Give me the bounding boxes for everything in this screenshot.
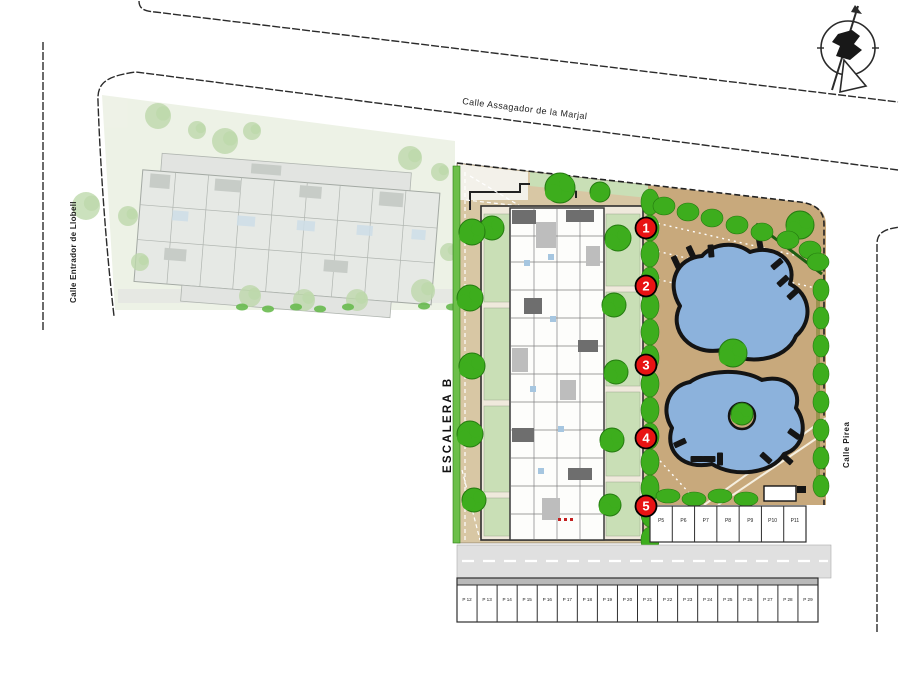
tree xyxy=(731,411,743,423)
parking-row-upper: P5P6P7P8P9P10P11 xyxy=(650,506,806,542)
parking-stall-label: P 16 xyxy=(543,597,553,602)
unit-badge-3-number: 3 xyxy=(642,358,649,373)
unit-badge-1-number: 1 xyxy=(642,221,649,236)
tree xyxy=(491,219,503,231)
tree xyxy=(599,502,611,514)
unit-badge-4-number: 4 xyxy=(642,431,650,446)
parking-stall-label: P 15 xyxy=(523,597,533,602)
parking-stall-label: P 22 xyxy=(663,597,673,602)
terrace-structure-dark xyxy=(797,486,806,493)
hedge-clump xyxy=(813,419,829,441)
hedge-clump xyxy=(751,223,773,241)
parking-stall-label: P9 xyxy=(747,518,753,524)
parking-stall-label: P 28 xyxy=(783,597,793,602)
tree xyxy=(600,437,613,450)
tree xyxy=(459,363,473,377)
faded-tree xyxy=(408,149,421,162)
site-plan-drawing: P5P6P7P8P9P10P11 P 12P 13P 14P 15P 16P 1… xyxy=(0,0,900,675)
hedge-clump xyxy=(677,203,699,221)
faded-tree xyxy=(156,106,170,120)
parking-stall-label: P 20 xyxy=(623,597,633,602)
tree xyxy=(799,215,813,229)
tree xyxy=(611,431,623,443)
street-label-right: Calle Pirea xyxy=(842,422,851,468)
tree xyxy=(613,296,625,308)
tree xyxy=(732,343,746,357)
parking-stall-label: P7 xyxy=(703,518,709,524)
tree xyxy=(545,184,562,201)
tree xyxy=(600,185,610,195)
tree xyxy=(590,190,601,201)
hedge-clump xyxy=(777,231,799,249)
site-escalera-b: P5P6P7P8P9P10P11 P 12P 13P 14P 15P 16P 1… xyxy=(453,163,831,622)
sun-lounger xyxy=(707,244,714,257)
parking-stall-label: P 23 xyxy=(683,597,693,602)
hedge-clump xyxy=(641,449,659,475)
unit-badge-1: 1 xyxy=(636,218,657,239)
tree xyxy=(457,431,471,445)
hedge-clump xyxy=(813,307,829,329)
faded-bush xyxy=(418,303,430,310)
faded-bush xyxy=(314,306,326,313)
hedge-clump xyxy=(641,319,659,345)
tree xyxy=(741,406,752,417)
hedge-clump xyxy=(813,391,829,413)
parking-stall-label: P 21 xyxy=(643,597,653,602)
parking-stall-label: P11 xyxy=(791,518,800,524)
faded-tree xyxy=(355,292,367,304)
faded-tree xyxy=(139,255,149,265)
faded-tree xyxy=(127,209,138,220)
parking-stall-label: P8 xyxy=(725,518,731,524)
unit-badge-5-number: 5 xyxy=(642,499,649,514)
hedge-clump xyxy=(807,253,829,271)
faded-tree xyxy=(84,196,99,211)
parking-stall-label: P 12 xyxy=(462,597,472,602)
tree xyxy=(602,302,615,315)
unit-badge-2: 2 xyxy=(636,276,657,297)
faded-tree xyxy=(421,282,434,295)
tree xyxy=(462,497,475,510)
hedge-clump xyxy=(641,397,659,423)
unit-badge-5: 5 xyxy=(636,496,657,517)
sun-lounger xyxy=(691,456,704,462)
faded-tree xyxy=(439,165,449,175)
unit-badge-4: 4 xyxy=(636,428,657,449)
staircase-label: ESCALERA B xyxy=(442,377,454,473)
faded-tree xyxy=(251,124,261,134)
faded-tree xyxy=(248,288,260,300)
left-hedge-strip xyxy=(453,166,460,543)
faded-tree xyxy=(196,123,206,133)
tree xyxy=(457,295,471,309)
tree xyxy=(459,229,473,243)
parking-stall-label: P10 xyxy=(768,518,777,524)
hedge-clump xyxy=(641,241,659,267)
parking-stall-label: P 29 xyxy=(803,597,813,602)
parking-stall-label: P6 xyxy=(680,518,686,524)
tree xyxy=(604,369,617,382)
tree xyxy=(473,491,485,503)
tree xyxy=(469,288,482,301)
parking-stall-label: P5 xyxy=(658,518,664,524)
tree xyxy=(559,177,574,192)
faded-bush xyxy=(342,304,354,311)
parking-stall-label: P 24 xyxy=(703,597,713,602)
parking-stall-label: P 25 xyxy=(723,597,733,602)
hedge-clump xyxy=(708,489,732,503)
terrace-structure xyxy=(764,486,796,501)
hedge-clump xyxy=(653,197,675,215)
sun-lounger xyxy=(717,453,723,466)
tree xyxy=(605,235,619,249)
faded-bush xyxy=(290,304,302,311)
tree xyxy=(617,228,630,241)
unit-badge-3: 3 xyxy=(636,355,657,376)
parking-row-lower: P 12P 13P 14P 15P 16P 17P 18P 19P 20P 21… xyxy=(457,578,818,622)
hedge-clump xyxy=(734,492,758,506)
unit-badge-2-number: 2 xyxy=(642,279,649,294)
parking-stall-label: P 26 xyxy=(743,597,753,602)
hedge-clump xyxy=(813,279,829,301)
parking-stall-label: P 27 xyxy=(763,597,773,602)
site-plan-page: P5P6P7P8P9P10P11 P 12P 13P 14P 15P 16P 1… xyxy=(0,0,900,675)
tree xyxy=(471,356,484,369)
tree xyxy=(609,497,620,508)
faded-tree xyxy=(302,292,314,304)
faded-bush xyxy=(262,306,274,313)
hedge-clump xyxy=(656,489,680,503)
sun-lounger xyxy=(703,456,716,462)
hedge-clump xyxy=(813,447,829,469)
parking-stall-label: P 19 xyxy=(603,597,613,602)
tree xyxy=(615,363,627,375)
hedge-clump xyxy=(813,363,829,385)
faded-tree xyxy=(223,131,237,145)
hedge-clump xyxy=(813,475,829,497)
faded-bush xyxy=(236,304,248,311)
tree xyxy=(719,350,734,365)
tree xyxy=(469,424,482,437)
hedge-clump xyxy=(701,209,723,227)
parking-stall-label: P 13 xyxy=(482,597,492,602)
hedge-clump xyxy=(813,335,829,357)
hedge-clump xyxy=(682,492,706,506)
parking-stall-label: P 17 xyxy=(563,597,573,602)
hedge-clump xyxy=(726,216,748,234)
tree xyxy=(471,222,484,235)
street-label-left: Calle Entrador de Llobell xyxy=(69,201,78,303)
parking-stall-label: P 18 xyxy=(583,597,593,602)
building-floor-plan xyxy=(510,208,604,540)
parking-stall-label: P 14 xyxy=(502,597,512,602)
